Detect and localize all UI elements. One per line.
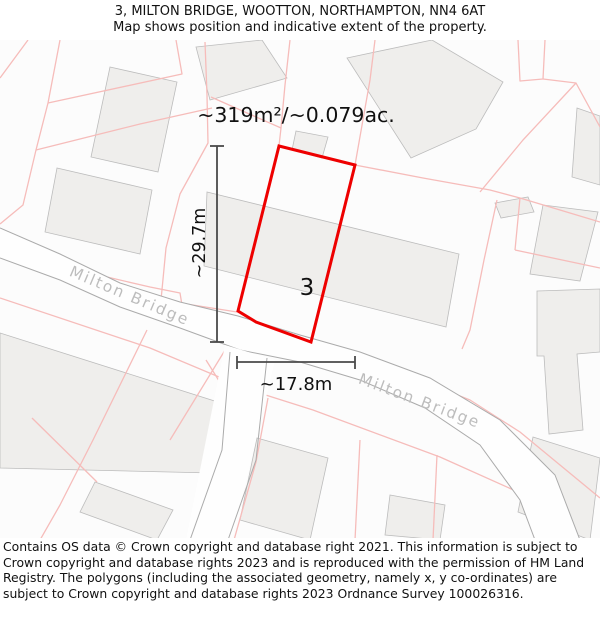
map-container: ~319m²/~0.079ac. ~29.7m ~17.8m 3 Milton … xyxy=(0,40,600,538)
width-label: ~17.8m xyxy=(260,374,333,395)
height-label: ~29.7m xyxy=(190,208,210,279)
page-title: 3, MILTON BRIDGE, WOOTTON, NORTHAMPTON, … xyxy=(0,0,600,19)
page-subtitle: Map shows position and indicative extent… xyxy=(0,20,600,35)
plot-number-label: 3 xyxy=(300,275,315,301)
area-label: ~319m²/~0.079ac. xyxy=(197,103,395,127)
copyright-notice: Contains OS data © Crown copyright and d… xyxy=(3,539,598,601)
map-canvas: ~319m²/~0.079ac. ~29.7m ~17.8m 3 Milton … xyxy=(0,40,600,538)
header: 3, MILTON BRIDGE, WOOTTON, NORTHAMPTON, … xyxy=(0,0,600,40)
